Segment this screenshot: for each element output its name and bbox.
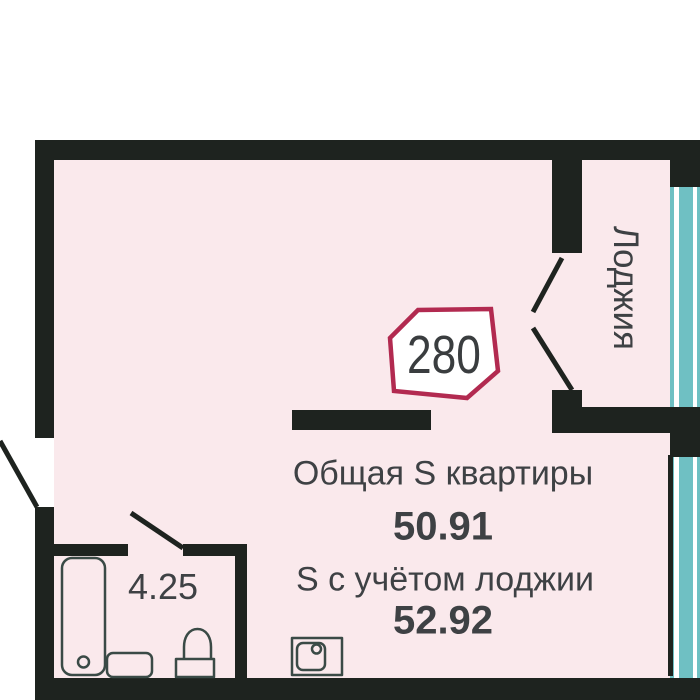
area-with-loggia-value: 52.92 [393, 599, 493, 644]
entry-door-swing-line [0, 441, 37, 507]
bathroom-area-value: 4.25 [128, 566, 198, 608]
toilet-icon [176, 629, 214, 677]
total-area-label: Общая S квартиры [293, 455, 593, 494]
bathtub-icon [62, 558, 105, 675]
loggia-label: Лоджия [605, 226, 645, 350]
area-with-loggia-label: S с учётом лоджии [296, 561, 594, 600]
unit-number: 280 [407, 324, 481, 386]
floor-plan: 280 Лоджия 4.25 Общая S квартиры 50.91 S… [0, 0, 700, 700]
loggia-door-swing-line-lower [533, 328, 572, 390]
loggia-door-swing-line-upper [533, 258, 562, 312]
sink-icon [292, 638, 342, 675]
washer-icon [107, 653, 152, 677]
total-area-value: 50.91 [393, 505, 493, 550]
bathroom-door-swing-line [131, 513, 183, 548]
